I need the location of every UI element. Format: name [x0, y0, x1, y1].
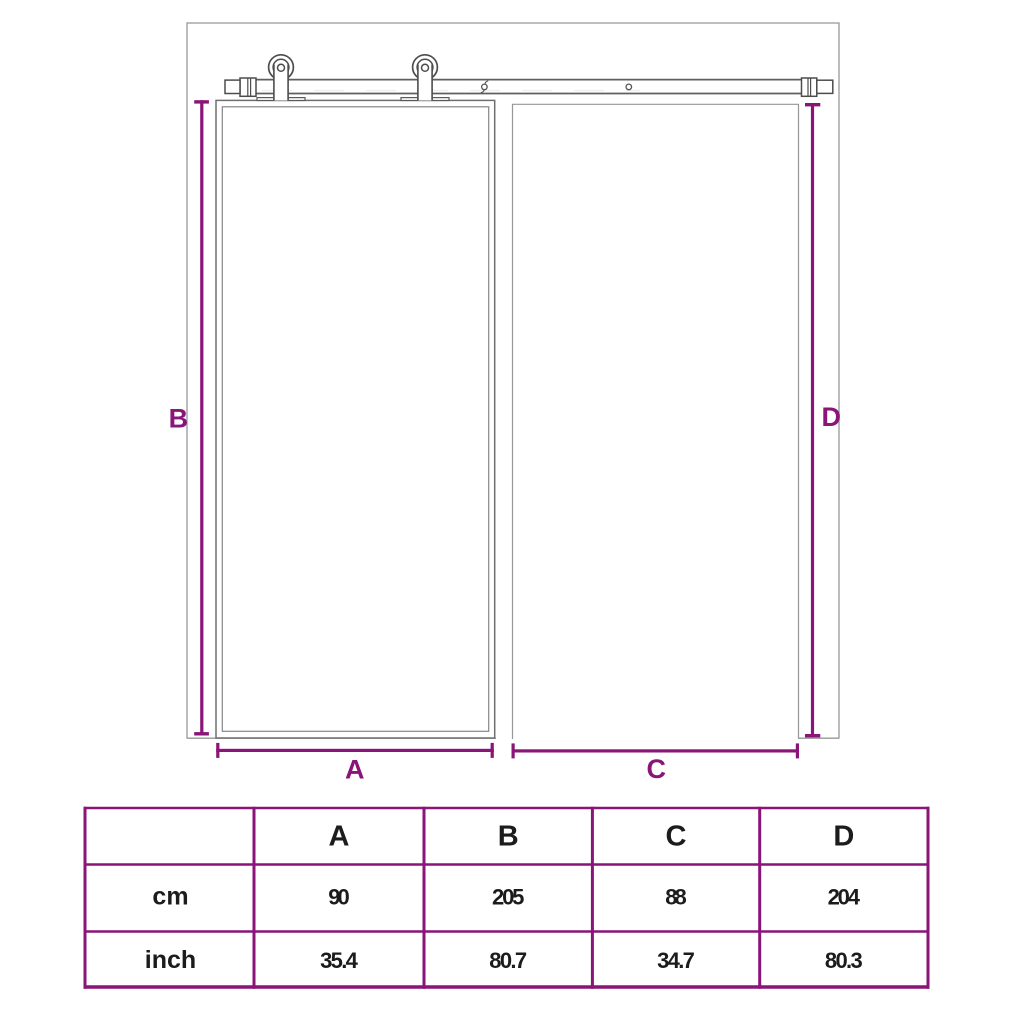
svg-text:C: C — [647, 754, 667, 784]
svg-text:35.4: 35.4 — [320, 948, 359, 973]
svg-text:A: A — [345, 755, 365, 785]
svg-text:inch: inch — [145, 946, 196, 974]
svg-text:D: D — [821, 402, 841, 432]
svg-text:204: 204 — [828, 885, 861, 910]
svg-text:D: D — [833, 821, 854, 853]
svg-text:88: 88 — [665, 885, 687, 910]
svg-text:80.3: 80.3 — [825, 948, 863, 973]
svg-text:90: 90 — [328, 885, 350, 910]
svg-text:34.7: 34.7 — [657, 948, 695, 973]
svg-text:cm: cm — [152, 883, 188, 911]
svg-text:B: B — [169, 404, 189, 434]
svg-text:C: C — [666, 821, 687, 853]
svg-text:A: A — [329, 821, 350, 853]
svg-text:205: 205 — [492, 885, 524, 910]
svg-text:80.7: 80.7 — [489, 948, 527, 973]
svg-text:B: B — [498, 821, 519, 853]
